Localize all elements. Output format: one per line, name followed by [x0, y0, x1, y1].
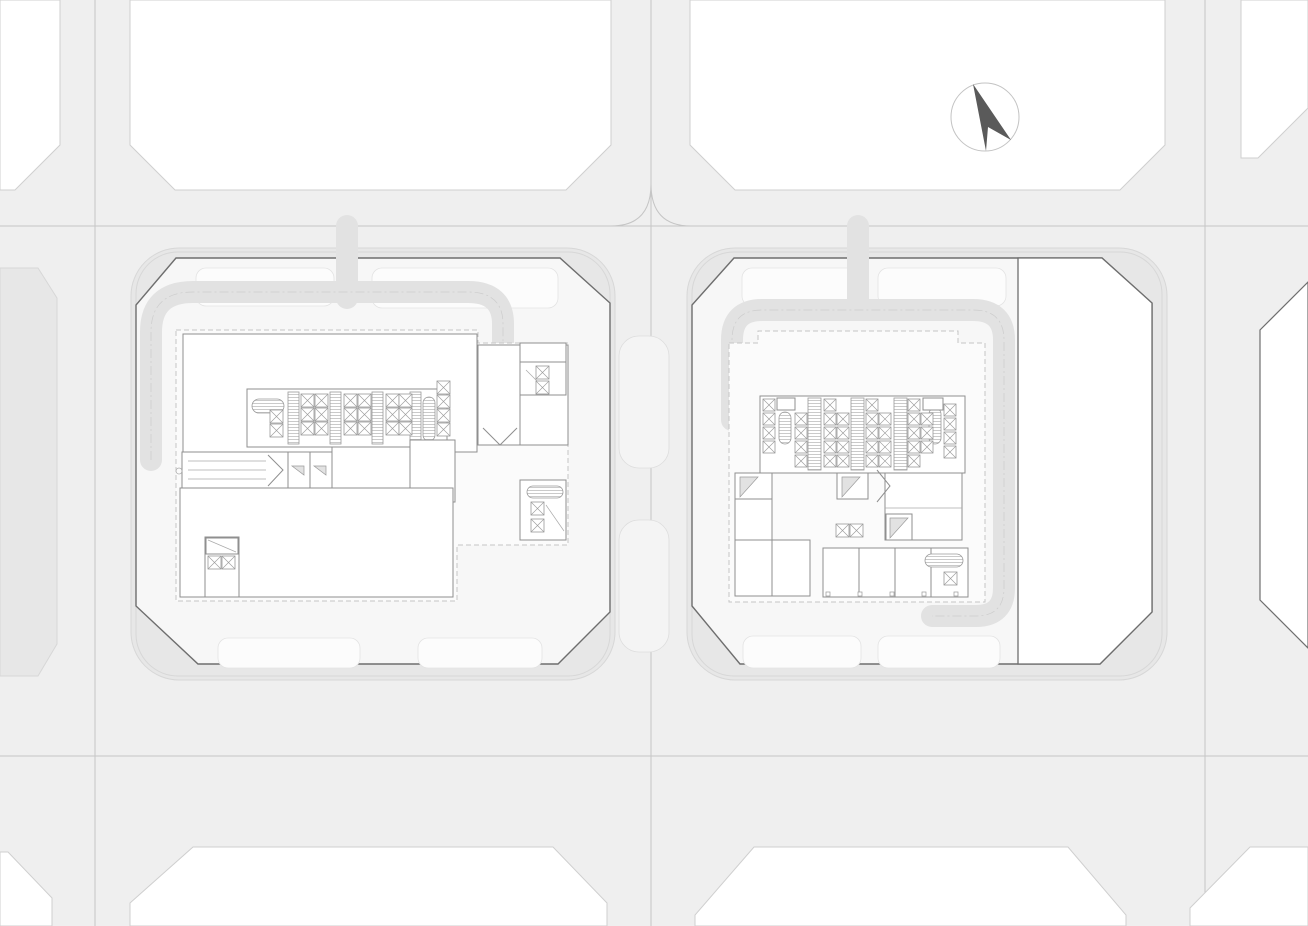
street-bay	[619, 336, 669, 468]
corner-plaza	[743, 636, 861, 668]
corner-plaza	[218, 638, 360, 668]
column-tick	[954, 592, 958, 596]
escalator-bank	[894, 398, 907, 470]
room	[735, 499, 772, 540]
west-block	[131, 226, 615, 680]
north-arrow	[951, 83, 1019, 151]
escalator-oval	[423, 397, 435, 441]
east-vacant-parcel	[1018, 258, 1152, 664]
column-tick	[858, 592, 862, 596]
block-north-left	[130, 0, 611, 190]
escalator-oval	[527, 486, 563, 498]
block-east-lens	[1260, 282, 1308, 648]
escalator-bank	[851, 398, 864, 470]
block-south-right	[695, 847, 1126, 926]
escalator-bank	[288, 392, 299, 444]
core-closet	[923, 398, 943, 410]
drawing-viewport	[0, 0, 1308, 926]
block-west-sliver	[0, 268, 57, 676]
block-north-right	[690, 0, 1165, 190]
site-plan-drawing	[0, 0, 1308, 926]
escalator-oval	[779, 412, 791, 444]
escalator-oval	[925, 554, 963, 567]
escalator-bank	[808, 398, 821, 470]
street-bay	[619, 520, 669, 652]
core-closet	[777, 398, 795, 410]
block-south-left	[130, 847, 607, 926]
east-block	[687, 226, 1167, 680]
column-tick	[826, 592, 830, 596]
column-tick	[890, 592, 894, 596]
corner-plaza	[878, 636, 1000, 668]
elevator-core	[247, 381, 450, 447]
corner-plaza	[418, 638, 542, 668]
escalator-bank	[372, 392, 383, 444]
column-tick	[922, 592, 926, 596]
escalator-bank	[330, 392, 341, 444]
